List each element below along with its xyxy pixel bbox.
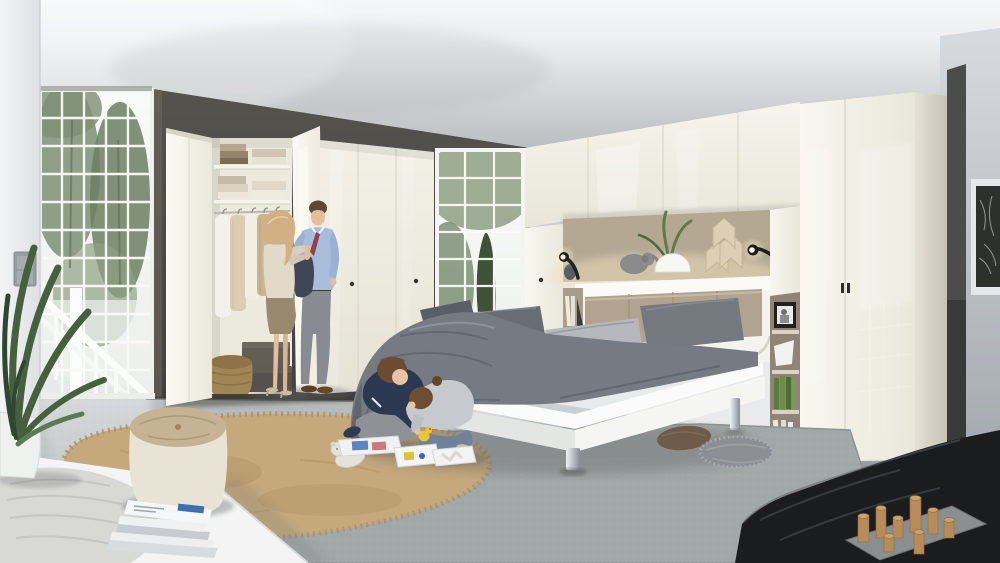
- door-handle: [350, 282, 354, 286]
- scene-canvas: [0, 0, 1000, 563]
- chrome-leg: [730, 398, 740, 430]
- botanical-print: [976, 186, 1000, 287]
- picture-books: [338, 436, 402, 456]
- art-frame: [971, 179, 1000, 295]
- wardrobe-open-door: [166, 128, 212, 406]
- wicker-basket: [210, 355, 253, 394]
- shoe: [317, 387, 333, 394]
- door-handle: [847, 283, 850, 293]
- shoe: [301, 386, 317, 393]
- overbed-unit: [525, 102, 800, 458]
- floor-cushion-grey: [700, 437, 772, 467]
- door-handle: [841, 283, 844, 293]
- cubby-shelves-right: [770, 206, 800, 458]
- skirt: [266, 294, 296, 334]
- bedroom-photo: [0, 0, 1000, 563]
- green-books: [774, 376, 796, 409]
- door-handle: [539, 278, 543, 282]
- window-sill: [37, 393, 155, 399]
- cubby-left: [563, 288, 583, 330]
- chrome-leg: [566, 448, 580, 470]
- face: [392, 369, 408, 385]
- door-handle: [414, 279, 418, 283]
- photo-frame: [774, 302, 796, 328]
- face: [409, 402, 416, 409]
- hair-bun: [432, 376, 442, 386]
